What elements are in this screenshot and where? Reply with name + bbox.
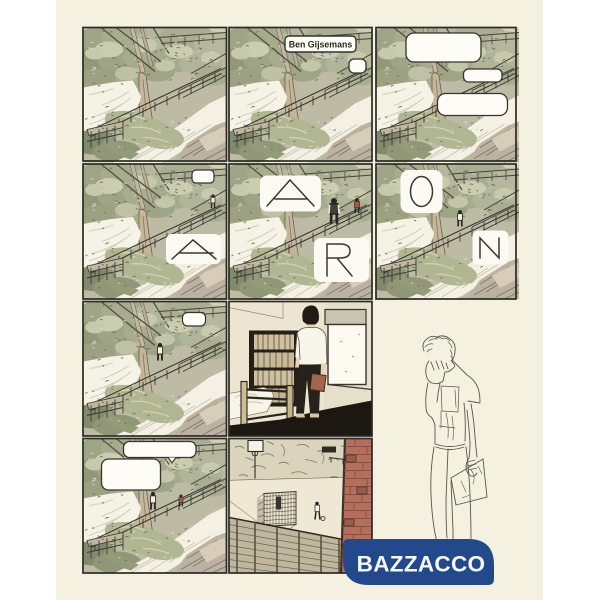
svg-text:Ben Gijsemans: Ben Gijsemans (289, 40, 353, 50)
svg-text:BAZZACCO: BAZZACCO (357, 552, 486, 577)
